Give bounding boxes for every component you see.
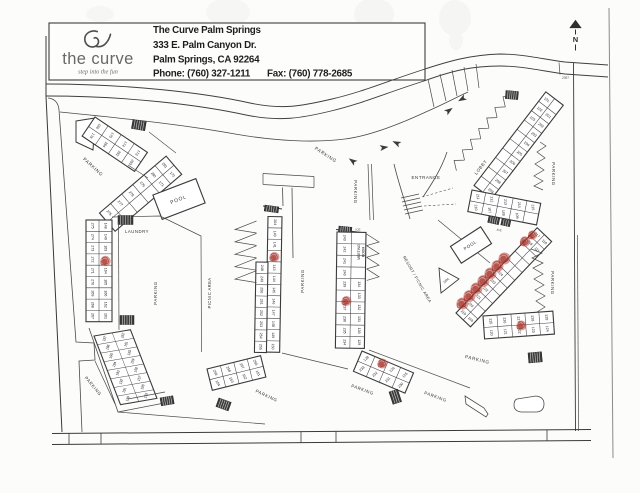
svg-text:234: 234 [342, 339, 346, 345]
svg-text:Fax: (760) 778-2685: Fax: (760) 778-2685 [267, 69, 353, 80]
svg-text:333 E. Palm Canyon Dr.: 333 E. Palm Canyon Dr. [153, 40, 257, 51]
svg-text:132: 132 [357, 304, 361, 310]
svg-text:N: N [573, 35, 578, 44]
svg-text:165: 165 [104, 279, 108, 285]
svg-text:254: 254 [259, 333, 263, 339]
svg-text:147: 147 [271, 310, 275, 316]
svg-text:134: 134 [357, 281, 361, 287]
svg-text:130: 130 [357, 328, 361, 334]
svg-text:123: 123 [531, 326, 536, 332]
svg-text:148: 148 [271, 321, 275, 327]
svg-text:204: 204 [273, 219, 277, 225]
svg-text:108: 108 [501, 210, 505, 216]
svg-text:213: 213 [503, 199, 507, 205]
svg-text:211: 211 [476, 194, 480, 200]
svg-text:214: 214 [517, 202, 521, 208]
svg-text:144: 144 [272, 276, 276, 282]
svg-text:149: 149 [104, 234, 108, 240]
svg-text:273: 273 [91, 245, 95, 251]
svg-text:162: 162 [104, 302, 108, 308]
svg-text:PARKING: PARKING [153, 281, 158, 305]
svg-text:133: 133 [357, 293, 361, 299]
svg-text:140: 140 [273, 231, 277, 237]
svg-text:MEETING: MEETING [357, 244, 361, 260]
svg-text:235: 235 [342, 328, 346, 334]
svg-text:121: 121 [503, 328, 508, 334]
svg-text:the curve: the curve [62, 50, 133, 68]
svg-text:248: 248 [260, 265, 264, 271]
svg-text:166: 166 [104, 290, 108, 296]
svg-text:PARKING: PARKING [550, 271, 555, 295]
svg-text:The Curve Palm Springs: The Curve Palm Springs [153, 25, 262, 36]
svg-text:ENTRANCE: ENTRANCE [412, 175, 441, 180]
svg-text:131: 131 [357, 316, 361, 322]
svg-text:267: 267 [91, 313, 95, 319]
svg-text:251: 251 [259, 299, 263, 305]
svg-text:146: 146 [272, 298, 276, 304]
svg-text:229: 229 [544, 314, 549, 320]
svg-text:212: 212 [489, 196, 493, 202]
svg-text:143: 143 [272, 264, 276, 270]
svg-text:252: 252 [259, 310, 263, 316]
svg-text:PICNIC AREA: PICNIC AREA [207, 278, 212, 309]
svg-text:240: 240 [342, 270, 346, 276]
svg-text:241: 241 [342, 258, 346, 264]
svg-text:250: 250 [260, 287, 264, 293]
svg-text:120: 120 [489, 329, 494, 335]
svg-text:249: 249 [260, 276, 264, 282]
svg-text:107: 107 [487, 207, 491, 213]
svg-text:150: 150 [271, 343, 275, 349]
svg-text:163: 163 [104, 245, 108, 251]
svg-text:215: 215 [531, 204, 535, 210]
svg-text:228: 228 [530, 315, 535, 321]
svg-text:Palm Springs, CA 92264: Palm Springs, CA 92264 [153, 54, 260, 65]
svg-text:129: 129 [357, 339, 361, 345]
svg-text:255: 255 [259, 344, 263, 350]
svg-text:step into the fun: step into the fun [78, 69, 118, 76]
svg-text:242: 242 [342, 246, 346, 252]
svg-text:LAUNDRY: LAUNDRY [125, 229, 149, 234]
svg-text:268: 268 [91, 302, 95, 308]
svg-text:269: 269 [91, 290, 95, 296]
svg-text:ICE: ICE [355, 228, 360, 232]
svg-text:145: 145 [272, 287, 276, 293]
svg-text:2397: 2397 [562, 76, 569, 80]
svg-text:239: 239 [342, 281, 346, 287]
svg-text:109: 109 [515, 212, 519, 218]
svg-text:149: 149 [271, 332, 275, 338]
svg-text:124: 124 [545, 326, 550, 332]
svg-text:ROOM: ROOM [362, 247, 366, 258]
svg-text:Phone: (760) 327-1211: Phone: (760) 327-1211 [153, 69, 251, 80]
svg-text:226: 226 [502, 317, 507, 323]
svg-text:PARKING: PARKING [551, 162, 556, 186]
svg-text:141: 141 [273, 242, 277, 248]
svg-text:148: 148 [104, 223, 108, 229]
svg-text:271: 271 [91, 268, 95, 274]
svg-text:PARKING: PARKING [353, 180, 358, 204]
svg-text:161: 161 [104, 313, 108, 319]
svg-text:236: 236 [342, 316, 346, 322]
svg-text:270: 270 [91, 279, 95, 285]
svg-text:164: 164 [104, 268, 108, 274]
svg-text:275: 275 [91, 223, 95, 229]
svg-text:272: 272 [91, 257, 95, 263]
svg-text:210: 210 [474, 204, 478, 210]
svg-text:243: 243 [342, 235, 346, 241]
svg-text:274: 274 [91, 234, 95, 240]
svg-text:225: 225 [488, 318, 493, 324]
svg-text:253: 253 [259, 321, 263, 327]
svg-text:PARKING: PARKING [300, 269, 305, 293]
